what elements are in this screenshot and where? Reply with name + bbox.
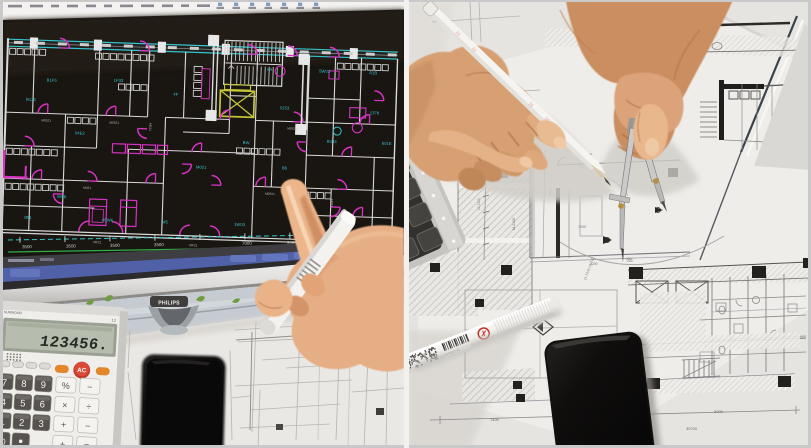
svg-text:M-2100: M-2100 xyxy=(512,218,516,230)
svg-text:7000: 7000 xyxy=(578,225,586,229)
svg-text:B1F5: B1F5 xyxy=(47,77,58,82)
svg-text:8: 8 xyxy=(21,379,27,390)
svg-text:M021: M021 xyxy=(83,186,91,190)
svg-text:05W6: 05W6 xyxy=(102,217,114,222)
svg-text:M021: M021 xyxy=(148,123,152,131)
svg-text:MF21: MF21 xyxy=(93,240,102,244)
svg-text:B6: B6 xyxy=(282,165,288,170)
svg-text:×: × xyxy=(62,400,68,410)
svg-text:%: % xyxy=(62,381,71,391)
svg-text:123456.: 123456. xyxy=(38,333,110,355)
svg-text:M5: M5 xyxy=(162,219,169,224)
svg-text:7000: 7000 xyxy=(242,241,252,246)
svg-text:÷: ÷ xyxy=(86,401,92,411)
svg-text:0996: 0996 xyxy=(57,194,67,199)
svg-text:3500: 3500 xyxy=(154,242,164,247)
svg-text:3: 3 xyxy=(38,419,44,430)
svg-text:0B1: 0B1 xyxy=(24,215,32,220)
svg-text:PHILIPS: PHILIPS xyxy=(158,301,180,307)
svg-text:M0521: M0521 xyxy=(41,118,51,122)
svg-text:B403: B403 xyxy=(327,139,338,144)
svg-text:1W03: 1W03 xyxy=(234,222,246,227)
svg-text:4F: 4F xyxy=(173,92,178,97)
svg-text:8A: 8A xyxy=(267,67,272,72)
svg-text:M0521: M0521 xyxy=(287,126,297,130)
svg-text:3500: 3500 xyxy=(66,243,76,248)
svg-text:1F03: 1F03 xyxy=(114,78,124,83)
svg-text:7400: 7400 xyxy=(490,417,500,422)
svg-text:5W02: 5W02 xyxy=(319,69,331,74)
svg-text:+: + xyxy=(61,420,67,430)
svg-text:BW: BW xyxy=(243,140,250,145)
svg-text:601E: 601E xyxy=(382,141,392,146)
svg-text:9: 9 xyxy=(40,380,46,391)
svg-text:4200: 4200 xyxy=(590,262,598,266)
svg-text:3500: 3500 xyxy=(22,244,32,249)
svg-text:12-2100: 12-2100 xyxy=(477,198,481,210)
svg-text:200: 200 xyxy=(627,259,633,263)
svg-text:6: 6 xyxy=(39,399,45,410)
svg-text:3500: 3500 xyxy=(110,243,120,248)
svg-text:5: 5 xyxy=(20,398,26,409)
svg-text:30700: 30700 xyxy=(686,426,698,431)
svg-text:2: 2 xyxy=(19,418,25,429)
svg-text:−: − xyxy=(85,421,91,431)
svg-text:A1B: A1B xyxy=(369,70,377,75)
svg-text:04E2: 04E2 xyxy=(75,130,86,135)
svg-text:M021: M021 xyxy=(330,199,334,207)
svg-text:M021: M021 xyxy=(196,164,207,169)
svg-text:M0521: M0521 xyxy=(265,192,275,196)
svg-text:MF21: MF21 xyxy=(189,243,198,247)
svg-text:9000: 9000 xyxy=(714,409,724,414)
svg-text:−: − xyxy=(87,382,93,392)
svg-text:1376: 1376 xyxy=(370,110,380,115)
svg-text:0153: 0153 xyxy=(280,105,290,110)
svg-text:AC: AC xyxy=(77,367,87,375)
svg-text:M0521: M0521 xyxy=(109,121,119,125)
svg-text:B125: B125 xyxy=(26,97,37,102)
